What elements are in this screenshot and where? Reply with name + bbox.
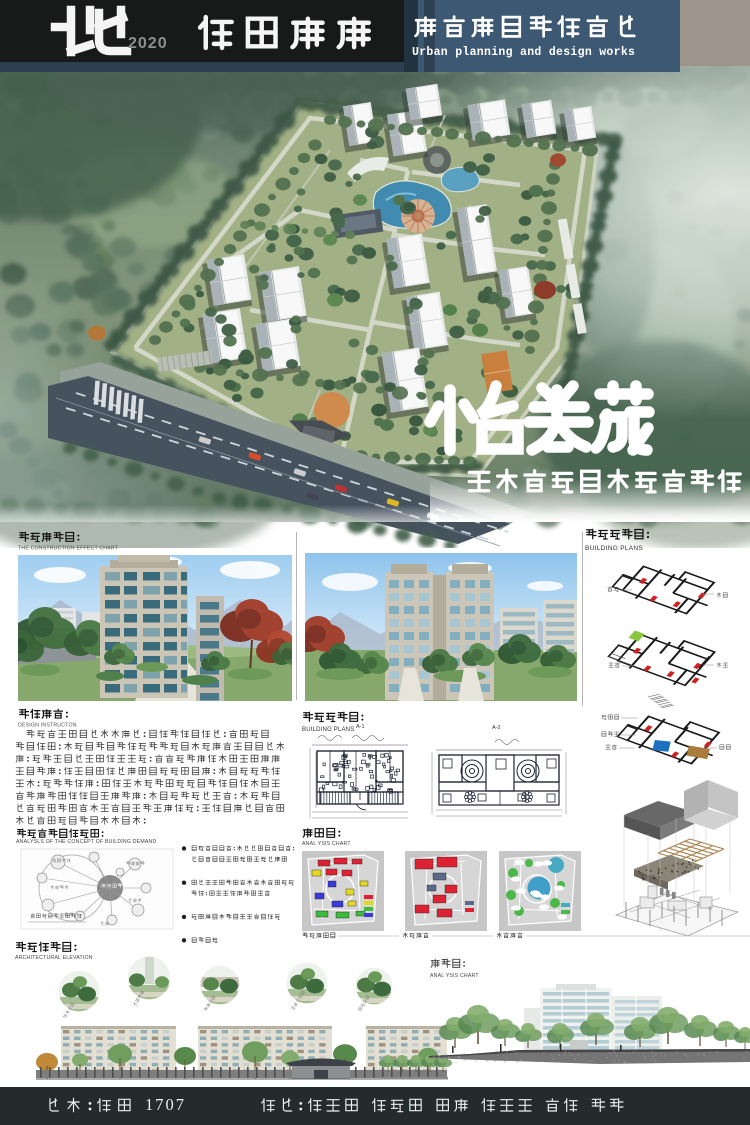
svg-text:1707: 1707 bbox=[145, 1095, 186, 1114]
svg-text:BUILDING PLANS: BUILDING PLANS bbox=[302, 727, 354, 733]
svg-text:THE CONSTRUCTION EFFECT CHART: THE CONSTRUCTION EFFECT CHART bbox=[18, 546, 119, 552]
svg-text:ANAL YSIS CHART: ANAL YSIS CHART bbox=[430, 973, 479, 979]
svg-text:A-1: A-1 bbox=[356, 724, 365, 730]
svg-text:Urban planning and design work: Urban planning and design works bbox=[412, 46, 635, 59]
svg-text:ANAL YSIS CHART: ANAL YSIS CHART bbox=[302, 841, 351, 847]
svg-text:A-2: A-2 bbox=[492, 725, 501, 731]
svg-text:DESIGN INSTRUCTON: DESIGN INSTRUCTON bbox=[18, 723, 77, 729]
svg-text:BUILDING PLANS: BUILDING PLANS bbox=[585, 545, 643, 552]
svg-text:2020: 2020 bbox=[128, 35, 168, 52]
svg-text:ARCHITECTURAL ELEVATION: ARCHITECTURAL ELEVATION bbox=[15, 955, 93, 961]
svg-text:ANALYSLS OF THE CONCEPT OF BUI: ANALYSLS OF THE CONCEPT OF BUILDING DEMA… bbox=[16, 839, 156, 845]
